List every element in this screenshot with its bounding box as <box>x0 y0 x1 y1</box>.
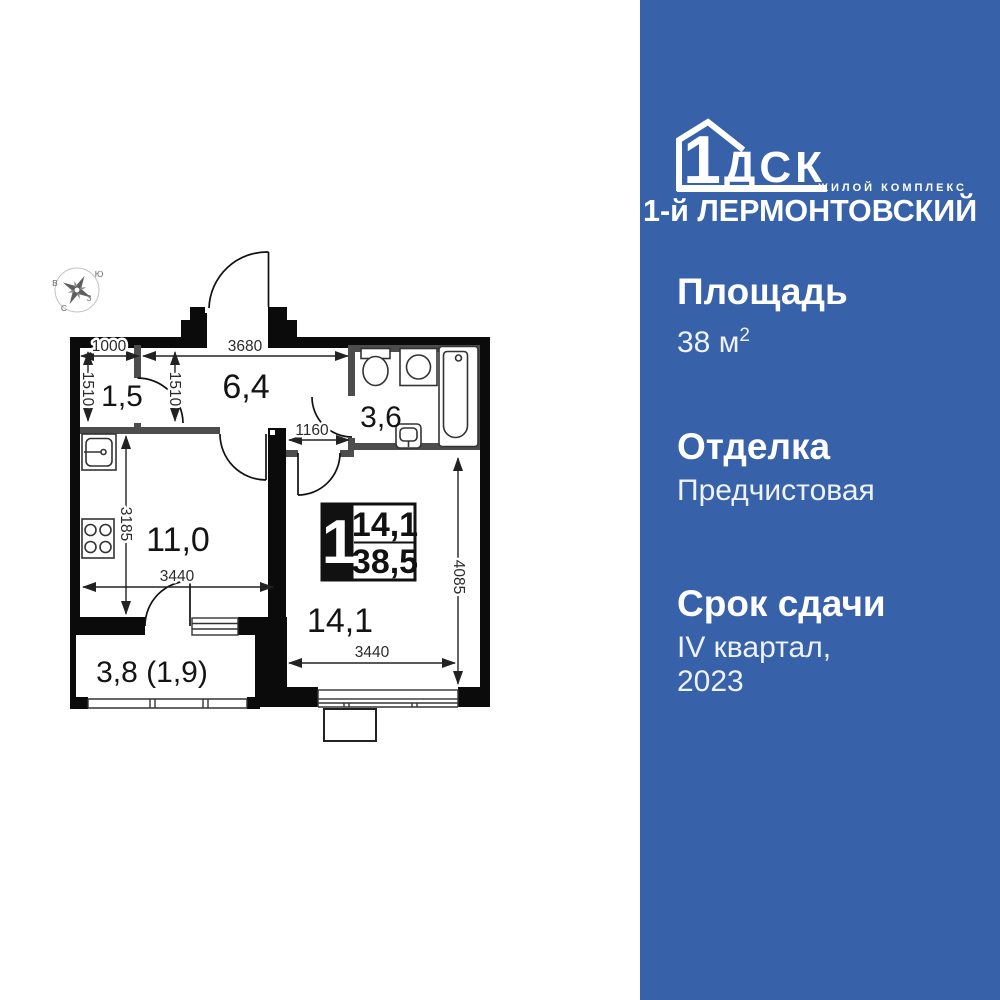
spec-deadline-value: IV квартал, 2023 <box>677 631 886 699</box>
spec-finish-value: Предчистовая <box>677 474 875 508</box>
dimension-label-3440-kitchen: 3440 <box>160 568 195 585</box>
dimension-label-4085: 4085 <box>450 560 467 594</box>
toilet <box>361 349 390 386</box>
kitchen-sink <box>82 434 116 470</box>
apartment-badge: 1 14,1 38,5 <box>322 504 418 581</box>
listing-card: 1000 3680 1510 1510 1160 3185 3440 3440 … <box>0 0 1000 1000</box>
spec-deadline: Срок сдачи IV квартал, 2023 <box>677 584 886 699</box>
room-label-bathroom: 3,6 <box>360 401 402 434</box>
spec-deadline-value-line1: IV квартал, <box>677 631 886 665</box>
dimension-label-1160: 1160 <box>295 422 329 439</box>
logo-letters: ДСК <box>724 143 826 192</box>
compass-south-label: Ю <box>95 269 104 279</box>
room-label-living: 14,1 <box>307 602 373 640</box>
spec-finish-label: Отделка <box>677 427 875 467</box>
spec-area: Площадь 38 м2 <box>677 272 848 360</box>
spec-deadline-value-line2: 2023 <box>677 665 886 699</box>
spec-area-label: Площадь <box>677 272 848 312</box>
spec-area-value: 38 м2 <box>677 319 848 360</box>
complex-name: 1-й ЛЕРМОНТОВСКИЙ <box>643 192 977 228</box>
dimension-label-1510-left: 1510 <box>79 372 96 407</box>
compass-west-label: З <box>86 293 91 303</box>
spec-finish: Отделка Предчистовая <box>677 427 875 508</box>
dimension-label-1510-right: 1510 <box>166 372 183 407</box>
stove <box>82 519 114 558</box>
compass-east-label: В <box>52 278 58 288</box>
compass-icon: Ю В З С <box>52 268 104 313</box>
badge-living-area: 14,1 <box>352 506 418 544</box>
room-label-hallway: 1,5 <box>101 380 143 413</box>
washing-machine <box>400 349 437 386</box>
spec-area-value-text: 38 м <box>677 326 739 359</box>
room-label-balcony: 3,8 (1,9) <box>96 656 208 689</box>
compass-north-label: С <box>61 303 67 313</box>
brand-logo: 1 ДСК ЖИЛОЙ КОМПЛЕКС 1-й ЛЕРМОНТОВСКИЙ <box>640 100 1000 245</box>
logo-number: 1 <box>683 122 721 198</box>
ac-unit <box>324 709 376 741</box>
spec-deadline-label: Срок сдачи <box>677 584 886 624</box>
dimension-label-3185: 3185 <box>117 507 134 541</box>
spec-area-value-sup: 2 <box>739 325 750 346</box>
dimension-label-3440-living: 3440 <box>355 644 390 661</box>
badge-total-area: 38,5 <box>352 543 418 581</box>
room-label-corridor: 6,4 <box>222 368 269 406</box>
logo-tagline: ЖИЛОЙ КОМПЛЕКС <box>817 181 967 194</box>
room-label-kitchen: 11,0 <box>146 521 210 559</box>
dimension-label-3680: 3680 <box>228 338 263 355</box>
dimension-label-1000: 1000 <box>92 338 127 355</box>
info-panel: 1 ДСК ЖИЛОЙ КОМПЛЕКС 1-й ЛЕРМОНТОВСКИЙ П… <box>640 0 1000 1000</box>
bathtub <box>439 347 478 447</box>
